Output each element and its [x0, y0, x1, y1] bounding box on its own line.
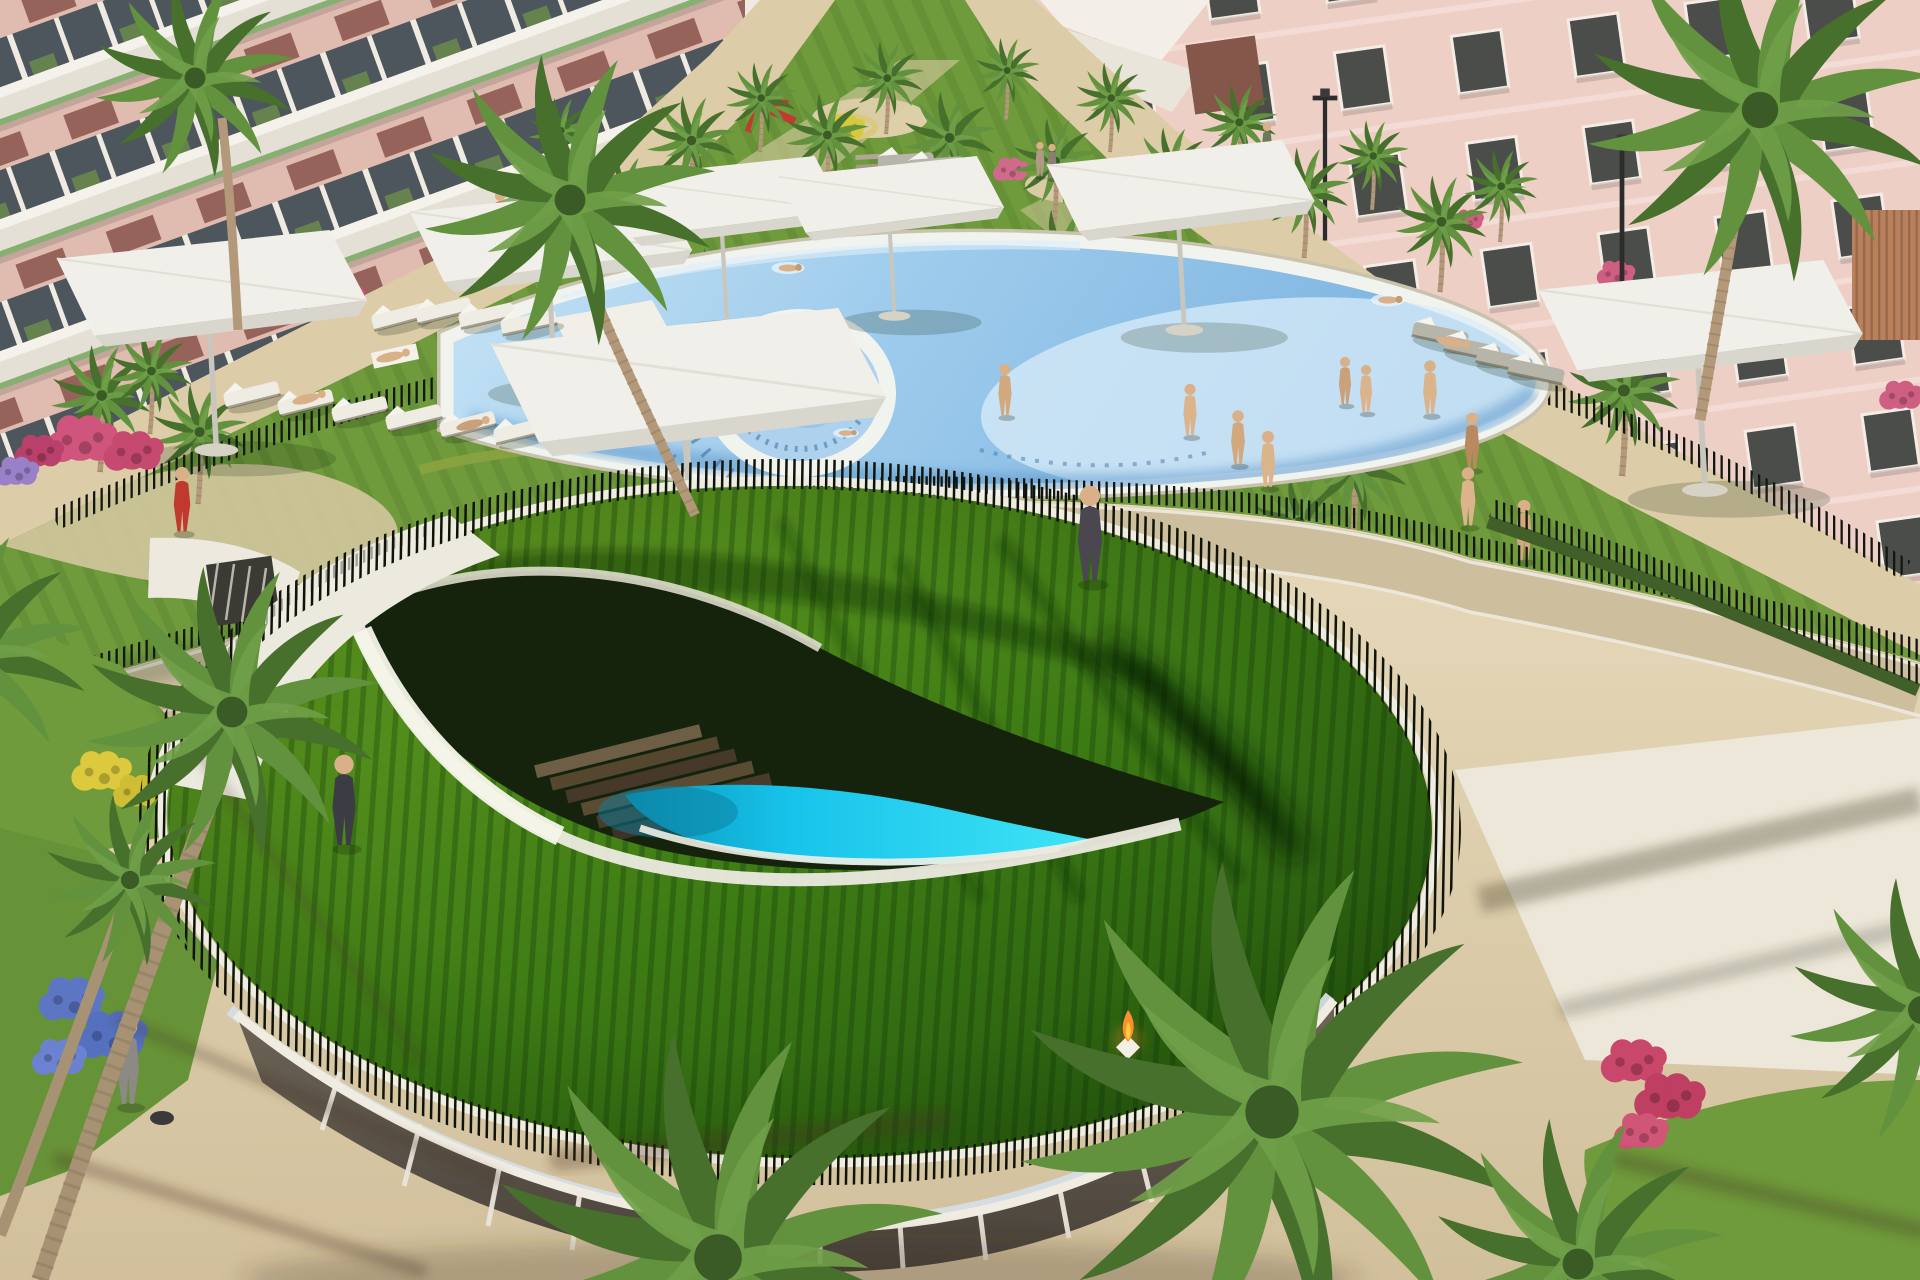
swimmer	[772, 262, 805, 274]
resort-aerial-render	[0, 0, 1920, 1280]
swimmer	[833, 428, 859, 437]
render-image	[0, 0, 1920, 1280]
swimmer	[1371, 294, 1406, 307]
bag	[150, 1111, 174, 1125]
